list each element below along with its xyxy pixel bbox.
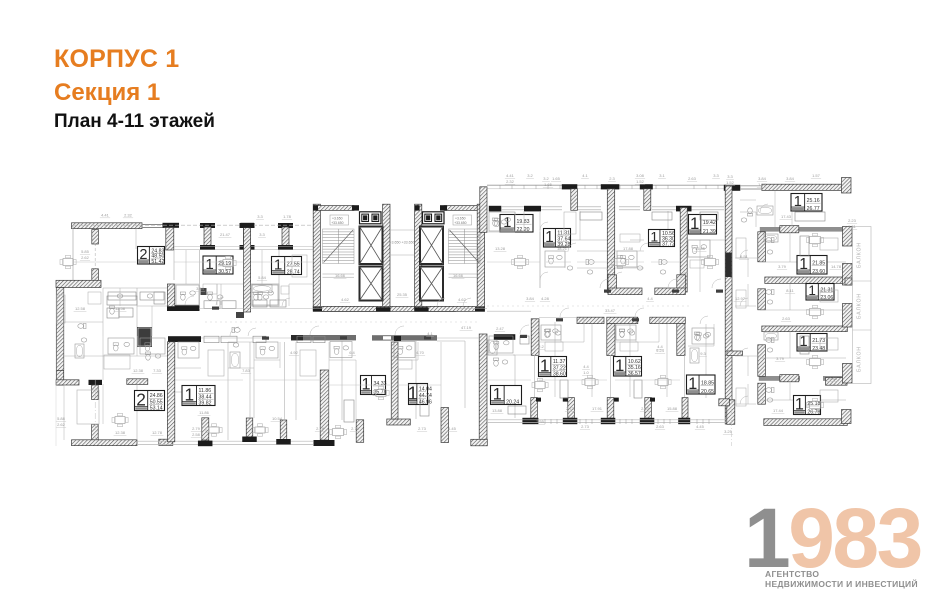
svg-text:4.45: 4.45: [696, 424, 705, 429]
svg-text:4.4: 4.4: [583, 364, 589, 369]
svg-text:2.73: 2.73: [581, 424, 590, 429]
svg-text:1.81: 1.81: [848, 224, 857, 229]
svg-text:3.2: 3.2: [543, 176, 549, 181]
svg-text:12.78: 12.78: [152, 430, 163, 435]
svg-text:2.55: 2.55: [536, 419, 545, 424]
svg-text:1.57: 1.57: [758, 182, 767, 187]
svg-text:2.2: 2.2: [538, 344, 544, 349]
svg-text:4.28: 4.28: [541, 296, 550, 301]
svg-text:2.23: 2.23: [848, 218, 857, 223]
svg-text:2.32: 2.32: [124, 213, 133, 218]
svg-text:4.4: 4.4: [647, 296, 653, 301]
svg-text:3.94: 3.94: [196, 286, 205, 291]
svg-text:12.38: 12.38: [133, 368, 144, 373]
svg-text:2.63: 2.63: [656, 424, 665, 429]
svg-text:12.58: 12.58: [115, 306, 126, 311]
svg-text:4.92: 4.92: [290, 350, 299, 355]
svg-text:21.39: 21.39: [703, 229, 716, 235]
svg-text:4.45: 4.45: [448, 426, 457, 431]
svg-text:26.78: 26.78: [807, 410, 820, 416]
svg-text:3.79: 3.79: [778, 264, 787, 269]
svg-text:2.75: 2.75: [351, 426, 360, 431]
svg-text:23.60: 23.60: [812, 269, 825, 275]
svg-text:17.44: 17.44: [773, 408, 784, 413]
svg-text:1: 1: [650, 228, 658, 244]
svg-text:4.62: 4.62: [341, 297, 350, 302]
svg-text:+33.650: +33.650: [454, 221, 466, 225]
svg-text:23.48: 23.48: [812, 346, 825, 352]
svg-text:18.21: 18.21: [557, 246, 568, 251]
svg-text:2.62: 2.62: [81, 255, 90, 260]
svg-text:4.1: 4.1: [582, 173, 588, 178]
svg-text:2.73: 2.73: [566, 406, 575, 411]
svg-text:1.52: 1.52: [636, 179, 645, 184]
svg-text:11.86: 11.86: [199, 410, 209, 415]
svg-text:17.43: 17.43: [781, 214, 792, 219]
svg-text:2.63: 2.63: [688, 176, 697, 181]
svg-text:20.24: 20.24: [506, 400, 519, 406]
svg-text:5.85: 5.85: [81, 249, 90, 254]
svg-text:2.63: 2.63: [641, 406, 650, 411]
svg-text:3.3: 3.3: [257, 214, 263, 219]
svg-text:2.62: 2.62: [57, 422, 66, 427]
svg-text:47.19: 47.19: [461, 325, 472, 330]
svg-text:21.47: 21.47: [220, 232, 231, 237]
svg-text:+33.650: +33.650: [331, 221, 343, 225]
svg-text:1.57: 1.57: [812, 173, 821, 178]
svg-text:4.1: 4.1: [427, 331, 433, 336]
svg-text:46.96: 46.96: [419, 400, 432, 406]
svg-text:12.97: 12.97: [735, 296, 746, 301]
svg-text:20.65: 20.65: [701, 389, 714, 395]
svg-text:5.84: 5.84: [258, 275, 267, 280]
svg-text:12.38: 12.38: [115, 430, 126, 435]
svg-text:3.2: 3.2: [527, 173, 533, 178]
svg-text:5.88: 5.88: [57, 416, 66, 421]
svg-text:53.14: 53.14: [150, 406, 163, 412]
svg-text:14.78: 14.78: [831, 264, 842, 269]
svg-text:8.11: 8.11: [786, 288, 794, 293]
svg-text:15.85: 15.85: [695, 246, 706, 251]
svg-text:6.51: 6.51: [740, 254, 749, 259]
svg-text:3.84: 3.84: [526, 296, 535, 301]
svg-text:2.58: 2.58: [192, 432, 201, 437]
svg-text:3.1: 3.1: [659, 173, 665, 178]
svg-text:3.3: 3.3: [607, 264, 613, 269]
svg-text:2.79: 2.79: [192, 426, 201, 431]
svg-text:9.3: 9.3: [700, 351, 706, 356]
svg-text:28.74: 28.74: [287, 270, 300, 276]
svg-text:22.20: 22.20: [517, 227, 530, 233]
svg-text:1.0: 1.0: [583, 370, 589, 375]
svg-text:1: 1: [794, 194, 802, 210]
svg-text:3.3: 3.3: [259, 232, 265, 237]
svg-text:4.62: 4.62: [458, 297, 467, 302]
svg-text:7.83: 7.83: [242, 368, 251, 373]
svg-text:БАЛКОН: БАЛКОН: [857, 293, 863, 319]
svg-text:2.32: 2.32: [506, 179, 515, 184]
svg-text:16.66: 16.66: [335, 273, 346, 278]
svg-text:3.84: 3.84: [758, 176, 767, 181]
svg-text:36.57: 36.57: [628, 371, 641, 377]
svg-text:1.52: 1.52: [726, 180, 735, 185]
svg-text:12.58: 12.58: [75, 306, 86, 311]
svg-text:15.88: 15.88: [667, 406, 678, 411]
svg-text:2: 2: [139, 247, 147, 263]
svg-text:1.65: 1.65: [544, 182, 553, 187]
svg-text:БАЛКОН: БАЛКОН: [857, 242, 863, 268]
svg-text:2.3: 2.3: [609, 176, 615, 181]
svg-text:2.47: 2.47: [496, 326, 505, 331]
svg-text:1.65: 1.65: [552, 176, 561, 181]
svg-text:1: 1: [503, 215, 511, 231]
svg-text:3.3: 3.3: [713, 173, 719, 178]
svg-text:13.88: 13.88: [492, 408, 503, 413]
svg-text:3.84: 3.84: [786, 176, 795, 181]
svg-text:БАЛКОН: БАЛКОН: [857, 346, 863, 372]
svg-text:+3.650 +33.650: +3.650 +33.650: [389, 241, 414, 245]
svg-text:39.82: 39.82: [199, 401, 212, 407]
svg-text:26.77: 26.77: [807, 206, 820, 212]
svg-text:6.4: 6.4: [349, 350, 355, 355]
svg-text:19.88: 19.88: [827, 376, 838, 381]
svg-text:10.54: 10.54: [272, 416, 283, 421]
svg-text:4.41: 4.41: [506, 173, 515, 178]
svg-text:2.78: 2.78: [316, 426, 325, 431]
svg-text:17.91: 17.91: [592, 406, 603, 411]
svg-text:2.63: 2.63: [782, 316, 791, 321]
svg-text:13.28: 13.28: [495, 246, 506, 251]
svg-text:17.88: 17.88: [623, 246, 634, 251]
svg-text:4.4: 4.4: [657, 344, 663, 349]
svg-text:51.42: 51.42: [151, 259, 164, 265]
svg-text:23.06: 23.06: [820, 295, 833, 301]
svg-text:37.72: 37.72: [662, 242, 675, 248]
svg-text:3.3: 3.3: [727, 174, 733, 179]
svg-text:33.47: 33.47: [605, 308, 616, 313]
svg-text:25.35: 25.35: [397, 292, 408, 297]
svg-text:38.60: 38.60: [553, 372, 566, 378]
svg-text:16.66: 16.66: [453, 273, 464, 278]
svg-text:1: 1: [808, 283, 816, 298]
svg-text:3.08: 3.08: [636, 173, 645, 178]
svg-text:4.41: 4.41: [101, 213, 110, 218]
svg-text:3.79: 3.79: [776, 356, 785, 361]
svg-text:4.70: 4.70: [416, 350, 425, 355]
svg-text:7.33: 7.33: [153, 368, 162, 373]
svg-text:2.73: 2.73: [418, 426, 427, 431]
svg-text:1.78: 1.78: [283, 214, 292, 219]
